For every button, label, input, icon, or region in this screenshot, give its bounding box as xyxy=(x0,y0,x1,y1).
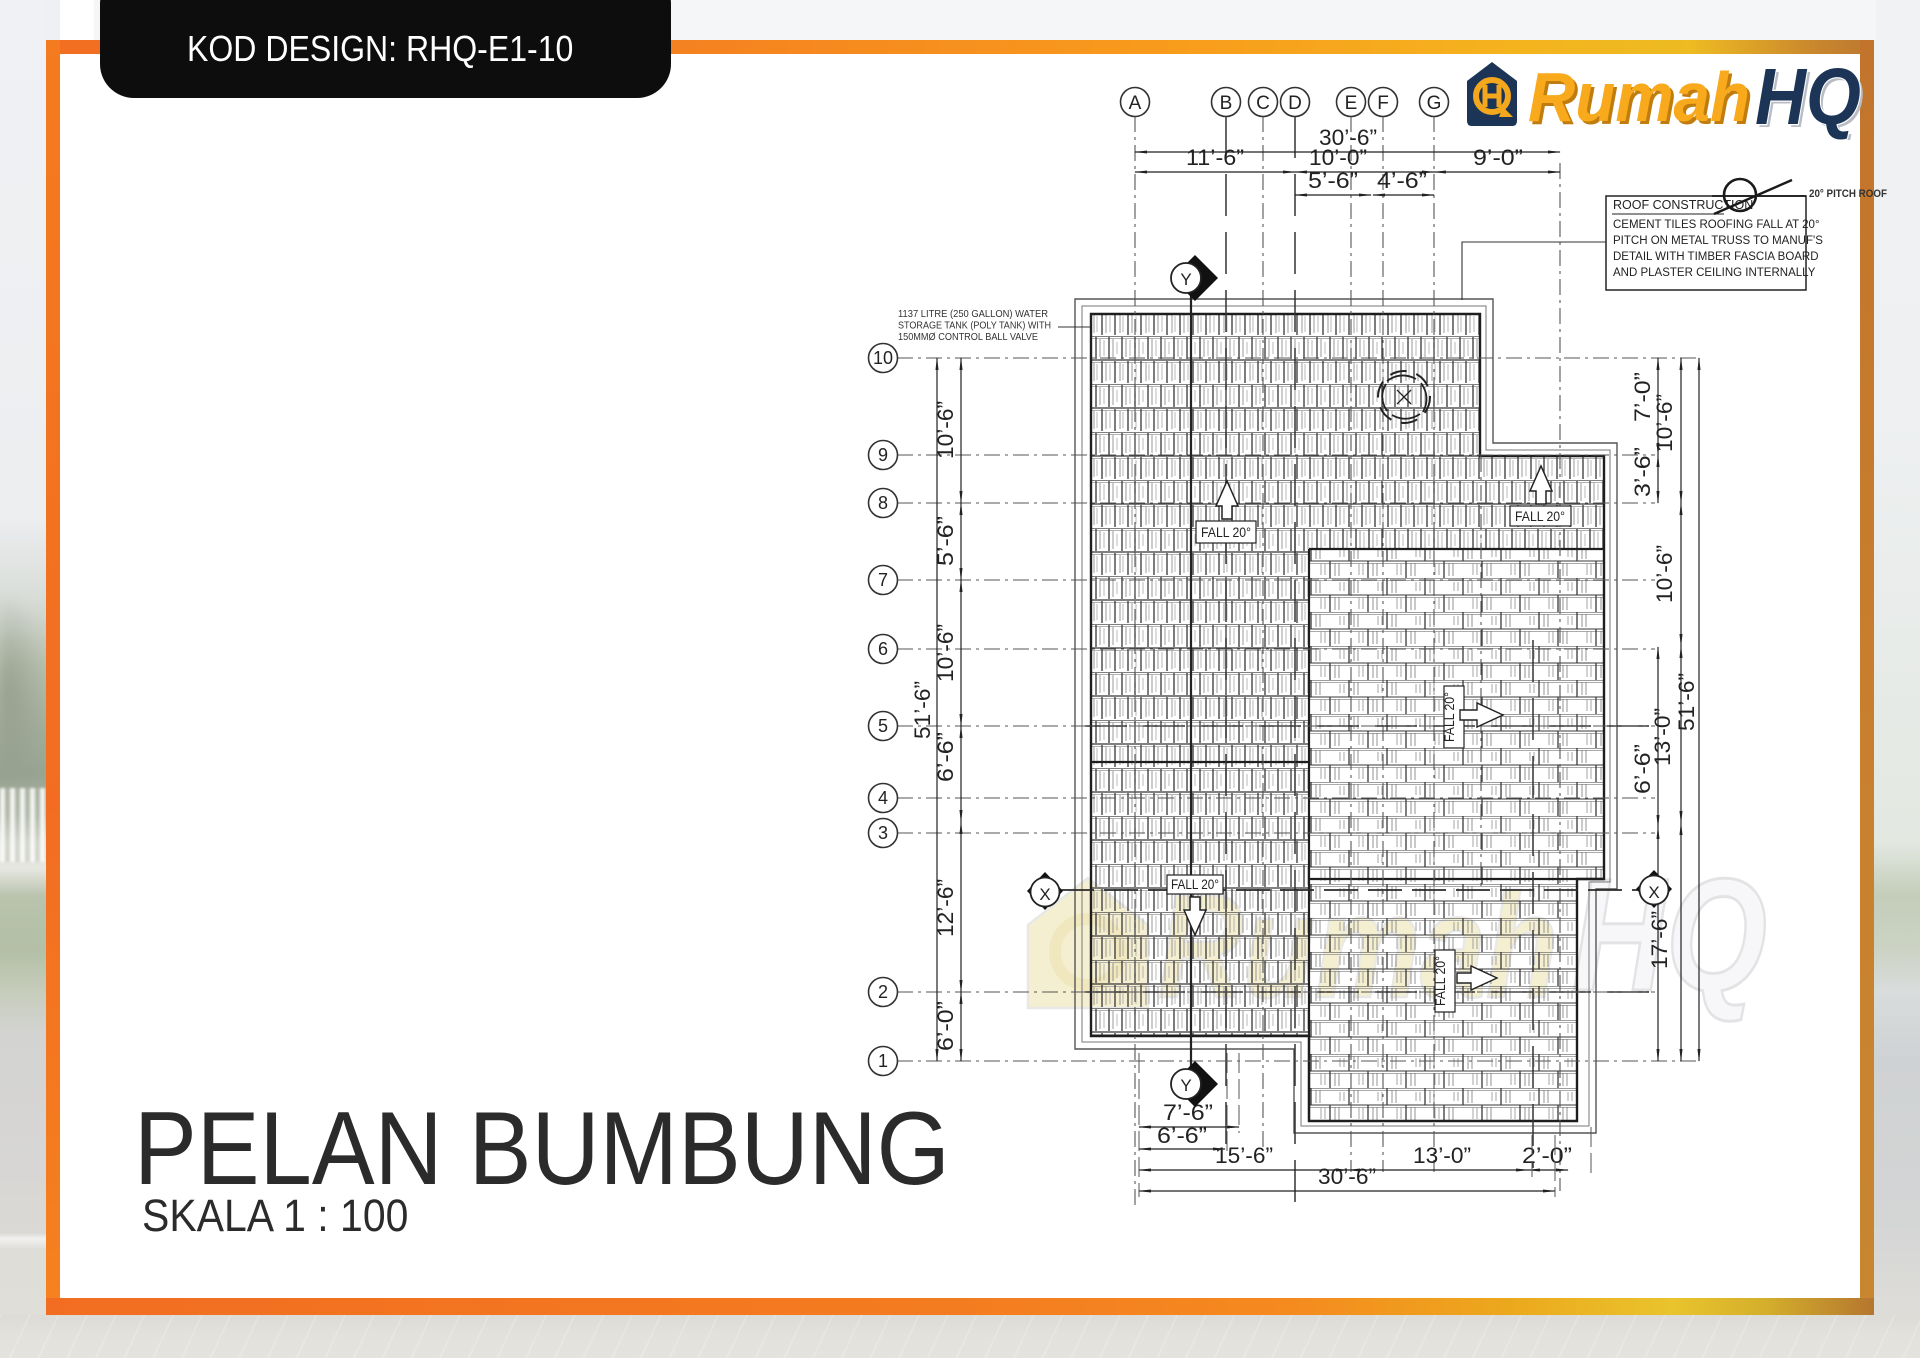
svg-text:C: C xyxy=(1256,93,1270,114)
svg-text:6’-6”: 6’-6” xyxy=(933,732,958,782)
svg-text:STORAGE TANK (POLY TANK) WITH: STORAGE TANK (POLY TANK) WITH xyxy=(898,320,1051,332)
svg-text:10’-6”: 10’-6” xyxy=(1652,394,1677,452)
svg-text:51’-6”: 51’-6” xyxy=(910,681,935,739)
svg-text:FALL 20°: FALL 20° xyxy=(1201,524,1251,540)
svg-text:FALL 20°: FALL 20° xyxy=(1515,508,1565,524)
svg-text:D: D xyxy=(1288,93,1302,114)
svg-text:6’-6”: 6’-6” xyxy=(1630,744,1655,794)
svg-text:5: 5 xyxy=(878,716,888,736)
svg-text:X: X xyxy=(1648,883,1659,902)
svg-text:2’-0”: 2’-0” xyxy=(1522,1143,1572,1168)
svg-text:8: 8 xyxy=(878,493,888,513)
svg-text:30’-6”: 30’-6” xyxy=(1318,1164,1376,1189)
svg-text:B: B xyxy=(1220,93,1233,114)
svg-text:6: 6 xyxy=(878,639,888,659)
svg-text:10: 10 xyxy=(873,348,893,368)
svg-text:7’-6”: 7’-6” xyxy=(1163,1100,1213,1125)
svg-text:10’-6”: 10’-6” xyxy=(933,401,958,459)
svg-text:10’-0”: 10’-0” xyxy=(1309,145,1367,170)
svg-text:F: F xyxy=(1377,93,1389,114)
svg-text:51’-6”: 51’-6” xyxy=(1674,673,1699,731)
svg-text:FALL 20°: FALL 20° xyxy=(1441,692,1457,742)
svg-text:20° PITCH ROOF: 20° PITCH ROOF xyxy=(1809,188,1887,200)
svg-text:X: X xyxy=(1039,885,1050,904)
svg-text:10’-6”: 10’-6” xyxy=(933,624,958,682)
svg-text:17’-6”: 17’-6” xyxy=(1647,911,1672,969)
svg-text:4’-6”: 4’-6” xyxy=(1377,168,1427,193)
svg-text:2: 2 xyxy=(878,982,888,1002)
svg-text:6’-0”: 6’-0” xyxy=(933,1001,958,1051)
svg-text:1137 LITRE (250 GALLON) WATER: 1137 LITRE (250 GALLON) WATER xyxy=(898,308,1048,320)
svg-text:15’-6”: 15’-6” xyxy=(1215,1143,1273,1168)
svg-text:PITCH ON METAL TRUSS TO MANUF': PITCH ON METAL TRUSS TO MANUF'S xyxy=(1613,235,1823,247)
svg-text:150MMØ CONTROL BALL VALVE: 150MMØ CONTROL BALL VALVE xyxy=(898,331,1038,343)
svg-text:Y: Y xyxy=(1180,270,1191,289)
svg-text:12’-6”: 12’-6” xyxy=(933,879,958,937)
svg-text:E: E xyxy=(1345,93,1358,114)
svg-text:3: 3 xyxy=(878,823,888,843)
svg-text:3’-6”: 3’-6” xyxy=(1630,447,1655,497)
svg-text:4: 4 xyxy=(878,788,888,808)
svg-text:FALL 20°: FALL 20° xyxy=(1171,876,1219,892)
svg-text:6’-6”: 6’-6” xyxy=(1157,1123,1207,1148)
svg-text:9: 9 xyxy=(878,445,888,465)
svg-text:CEMENT TILES ROOFING FALL AT 2: CEMENT TILES ROOFING FALL AT 20° xyxy=(1613,219,1820,231)
svg-text:13’-0”: 13’-0” xyxy=(1413,1143,1471,1168)
svg-text:Y: Y xyxy=(1180,1076,1191,1095)
svg-text:DETAIL WITH TIMBER FASCIA BOAR: DETAIL WITH TIMBER FASCIA BOARD xyxy=(1613,251,1819,263)
svg-text:10’-6”: 10’-6” xyxy=(1652,545,1677,603)
svg-text:9’-0”: 9’-0” xyxy=(1473,145,1523,170)
svg-text:A: A xyxy=(1129,93,1142,114)
svg-text:11’-6”: 11’-6” xyxy=(1186,145,1244,170)
svg-text:1: 1 xyxy=(878,1051,888,1071)
svg-text:AND PLASTER CEILING INTERNALLY: AND PLASTER CEILING INTERNALLY xyxy=(1613,267,1816,279)
svg-text:7: 7 xyxy=(878,570,888,590)
svg-text:5’-6”: 5’-6” xyxy=(933,516,958,566)
svg-text:5’-6”: 5’-6” xyxy=(1308,168,1358,193)
svg-text:G: G xyxy=(1427,93,1442,114)
svg-text:FALL 20°: FALL 20° xyxy=(1432,956,1448,1006)
